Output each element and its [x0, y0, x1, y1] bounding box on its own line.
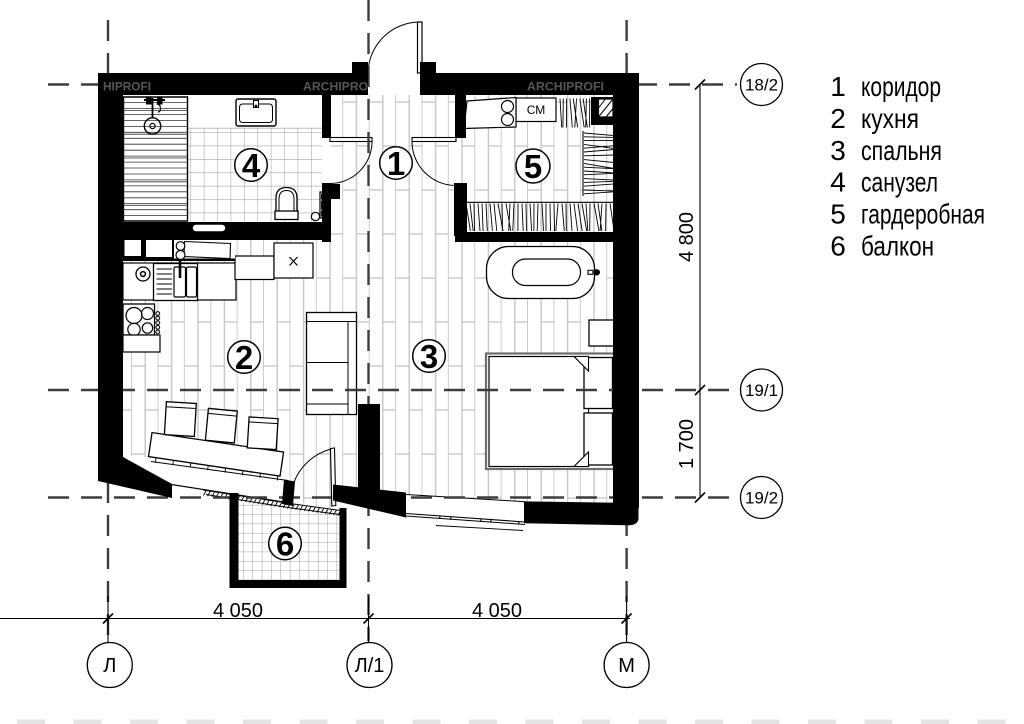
svg-text:19/2: 19/2 — [745, 488, 778, 507]
svg-text:6: 6 — [276, 525, 294, 562]
svg-text:ARCHIPROFI: ARCHIPROFI — [527, 82, 604, 94]
svg-text:кухня: кухня — [861, 103, 919, 134]
svg-text:19/1: 19/1 — [745, 381, 778, 400]
svg-text:4 800: 4 800 — [676, 212, 698, 262]
svg-text:4: 4 — [242, 147, 261, 184]
svg-text:СМ: СМ — [527, 103, 546, 117]
svg-text:Л/1: Л/1 — [355, 655, 385, 677]
svg-text:гардеробная: гардеробная — [861, 199, 985, 230]
svg-text:1: 1 — [830, 71, 846, 102]
svg-text:1 700: 1 700 — [676, 419, 698, 469]
svg-text:3: 3 — [420, 338, 438, 375]
svg-text:6: 6 — [830, 231, 846, 262]
svg-text:Л: Л — [103, 655, 116, 677]
svg-text:спальня: спальня — [861, 135, 942, 166]
svg-text:коридор: коридор — [861, 71, 941, 102]
svg-text:2: 2 — [830, 103, 846, 134]
svg-text:4 050: 4 050 — [213, 600, 263, 622]
svg-text:18/2: 18/2 — [745, 75, 778, 94]
svg-text:4 050: 4 050 — [472, 600, 522, 622]
svg-text:HIPROFI: HIPROFI — [103, 82, 151, 94]
svg-text:1: 1 — [387, 145, 405, 182]
svg-text:3: 3 — [830, 135, 846, 166]
svg-text:4: 4 — [830, 167, 846, 198]
svg-text:2: 2 — [235, 339, 253, 376]
svg-text:санузел: санузел — [861, 167, 938, 198]
svg-text:ARCHIPROFI: ARCHIPROFI — [303, 82, 379, 94]
svg-text:М: М — [618, 655, 635, 677]
svg-text:балкон: балкон — [861, 231, 934, 262]
svg-text:5: 5 — [830, 199, 846, 230]
svg-text:5: 5 — [524, 148, 542, 185]
